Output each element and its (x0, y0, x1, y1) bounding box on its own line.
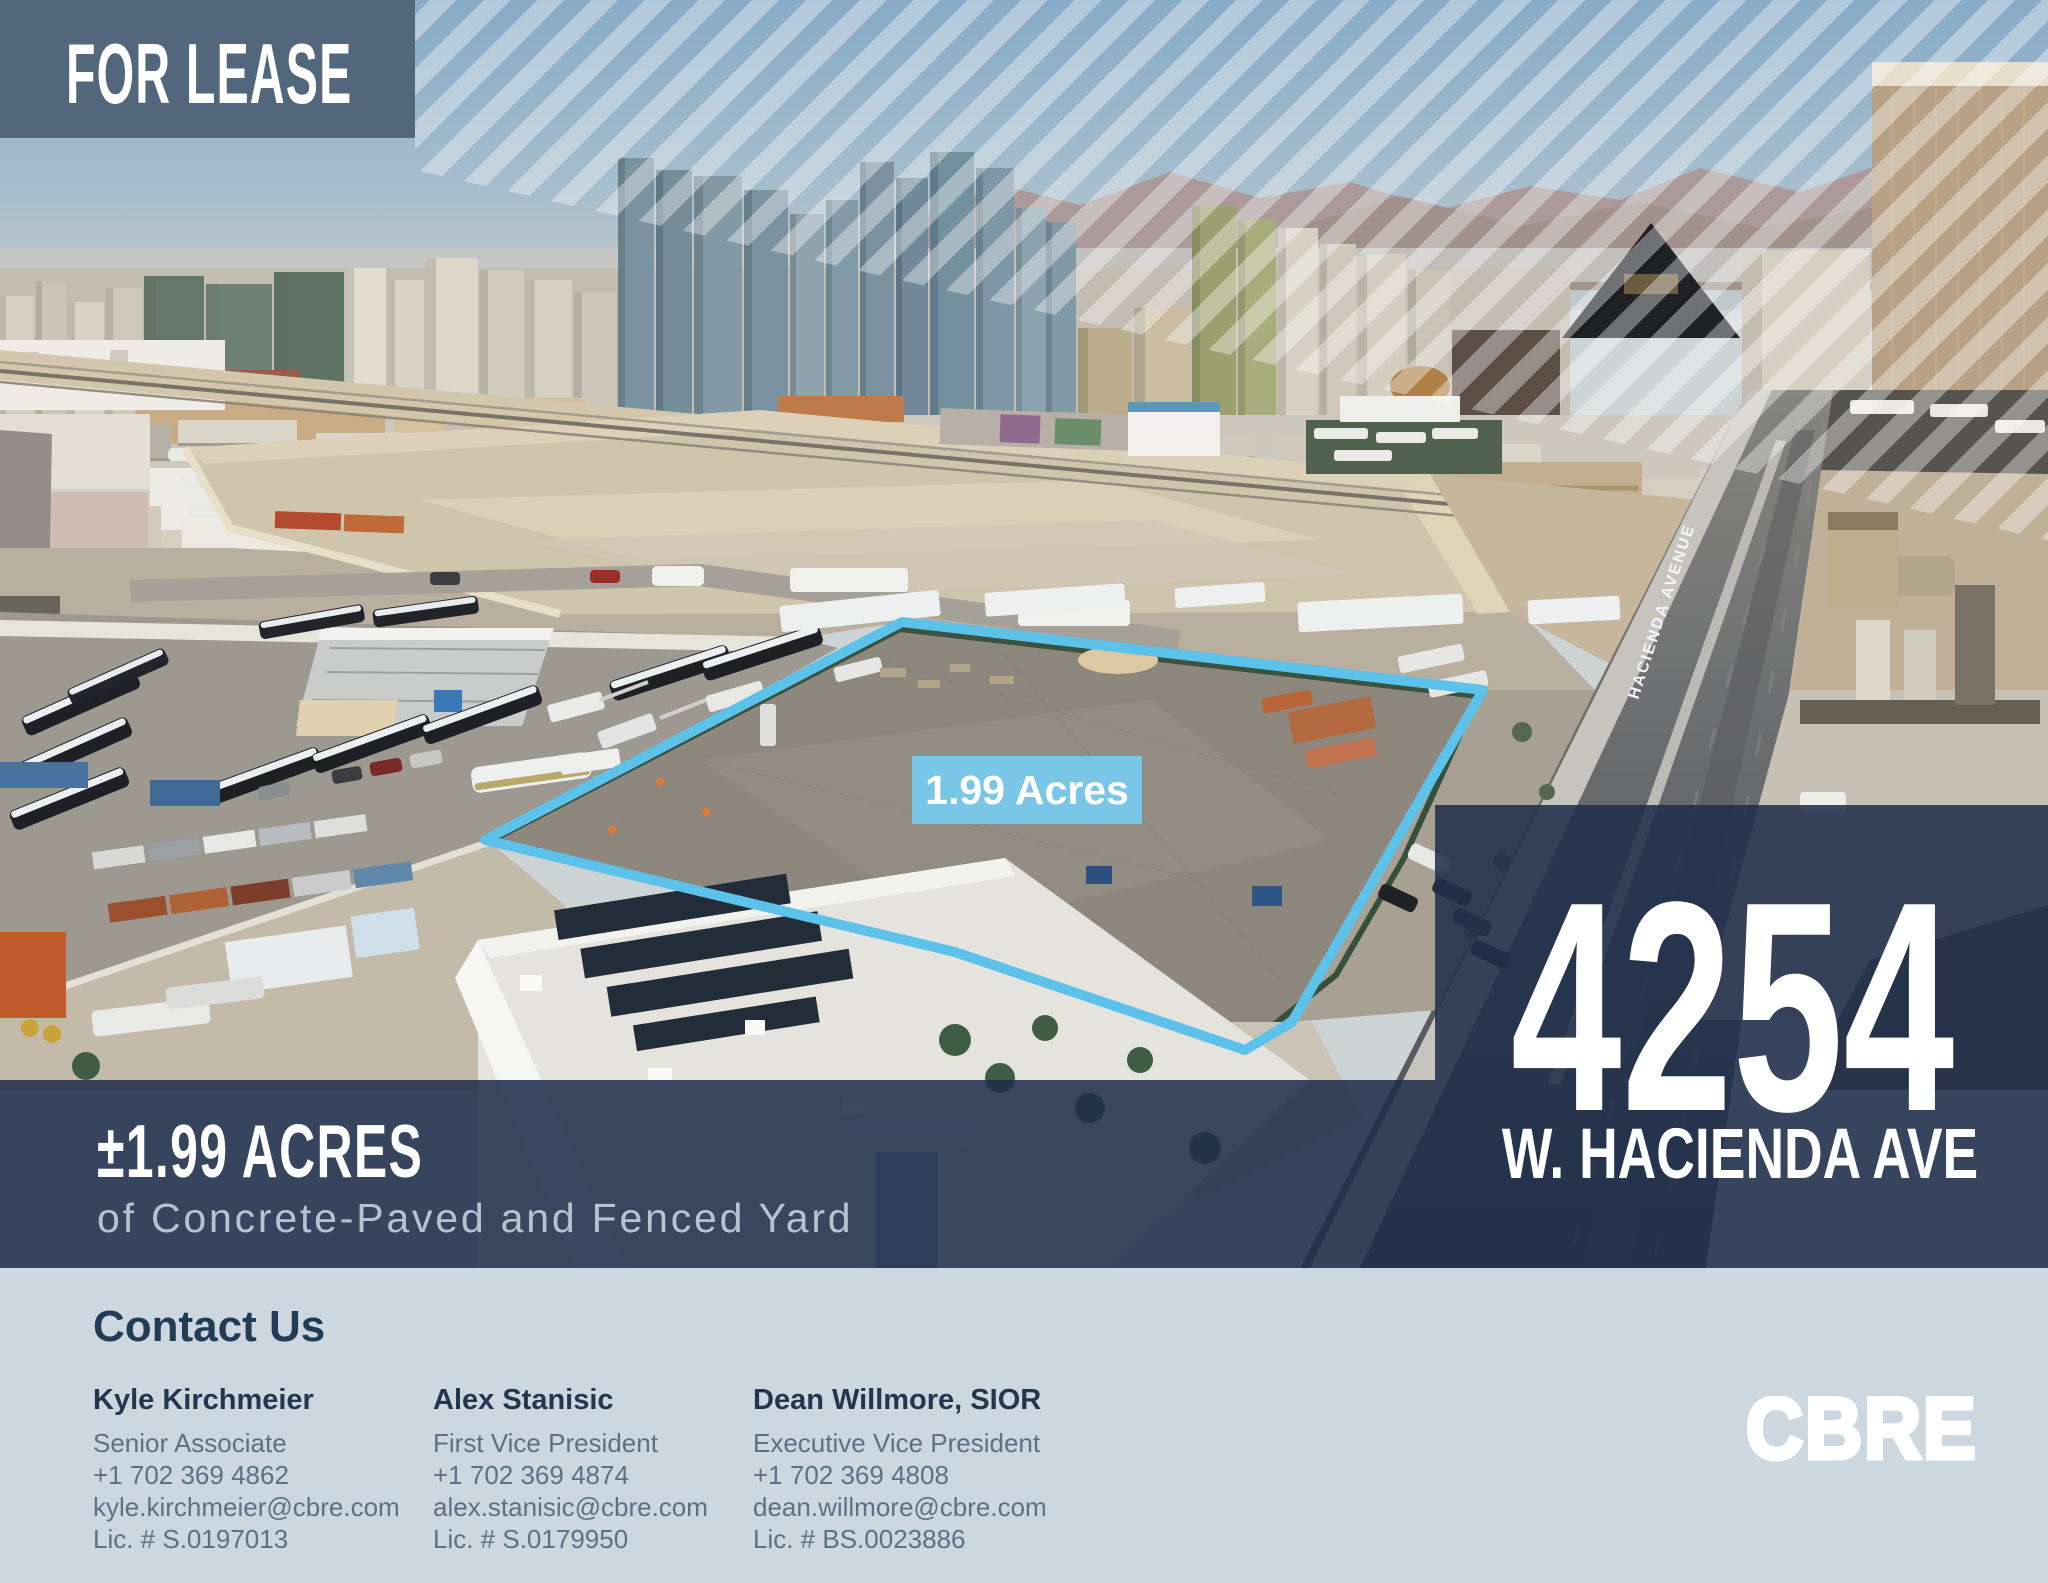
svg-text:W. HACIENDA AVE: W. HACIENDA AVE (1502, 1115, 1978, 1194)
svg-text:FOR LEASE: FOR LEASE (66, 26, 352, 122)
svg-text:of Concrete-Paved and Fenced Y: of Concrete-Paved and Fenced Yard (97, 1195, 853, 1241)
svg-text:±1.99 ACRES: ±1.99 ACRES (97, 1109, 423, 1194)
svg-text:CBRE: CBRE (1746, 1396, 1976, 1466)
